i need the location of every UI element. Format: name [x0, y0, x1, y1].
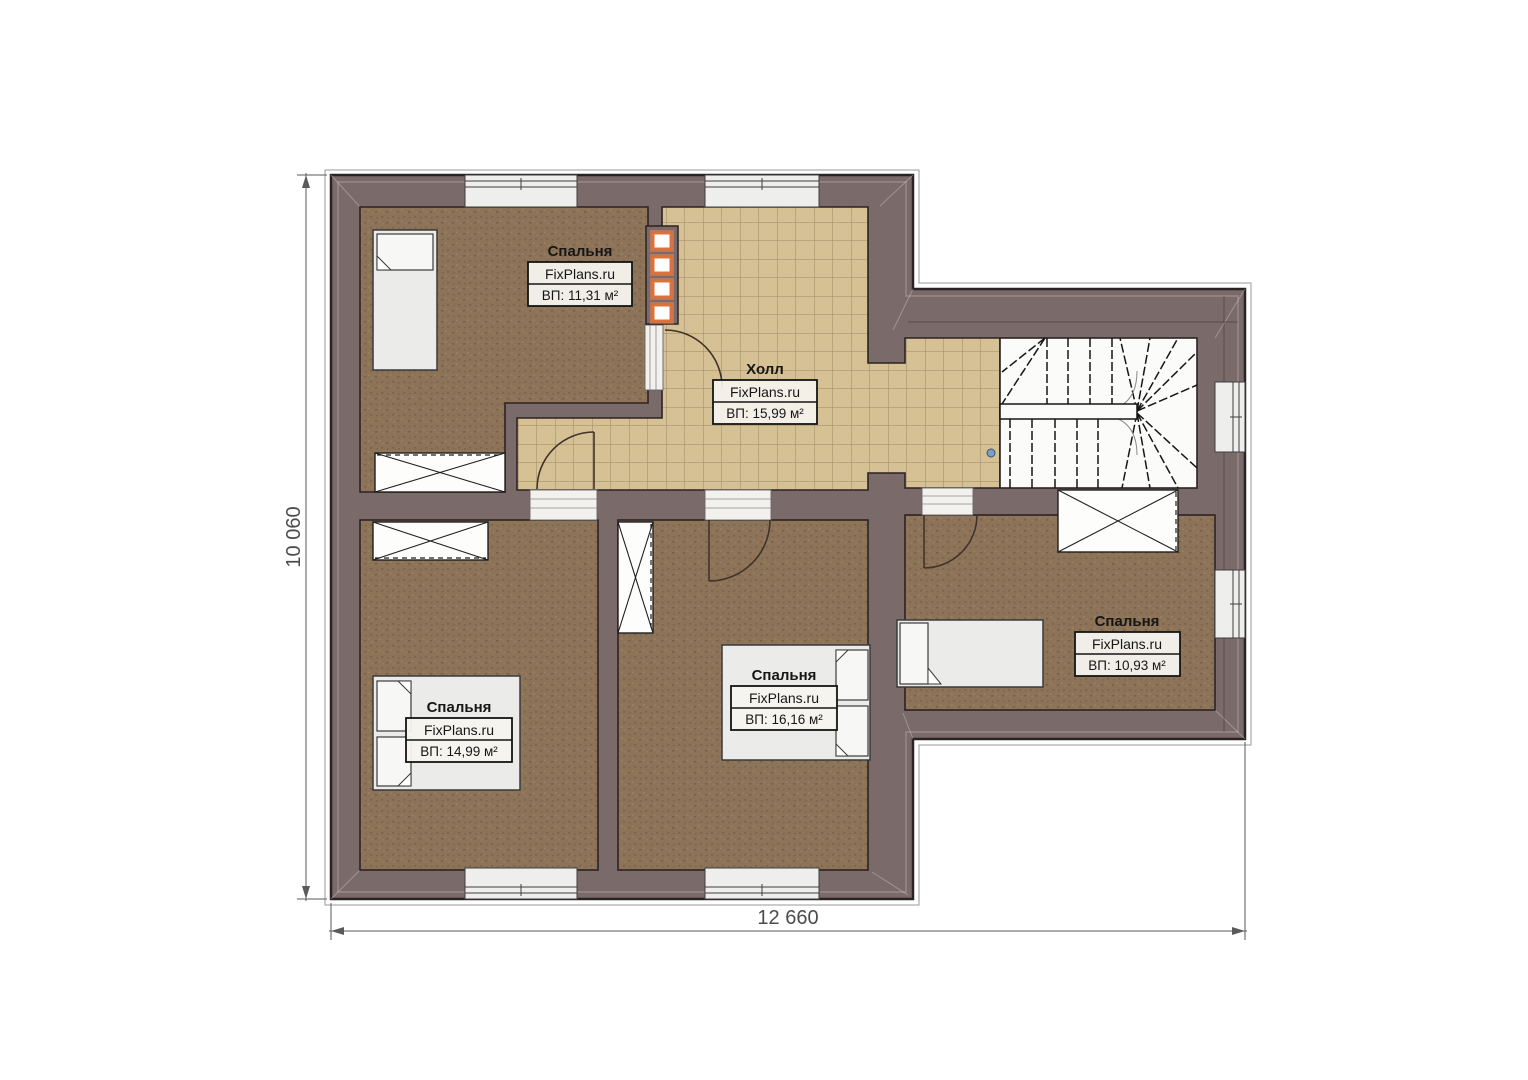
watermark: FixPlans.ru [424, 722, 494, 738]
door-threshold [922, 488, 973, 515]
dimension-width-label: 12 660 [757, 907, 818, 929]
closet [375, 453, 505, 492]
watermark: FixPlans.ru [749, 690, 819, 706]
room-area: ВП: 14,99 м² [420, 744, 498, 759]
door-threshold [645, 325, 663, 390]
closet [618, 522, 653, 633]
door-threshold [705, 490, 771, 520]
vent-shaft [646, 226, 678, 324]
window [705, 868, 819, 899]
room-title: Спальня [427, 699, 492, 716]
stair-landing-rail [1000, 404, 1137, 419]
closet [373, 522, 488, 560]
door-threshold [530, 490, 597, 520]
window [1215, 382, 1245, 452]
watermark: FixPlans.ru [1092, 636, 1162, 652]
watermark: FixPlans.ru [545, 266, 615, 282]
floor-plan-drawing: Спальня FixPlans.ru ВП: 11,31 м² Холл Fi… [0, 0, 1528, 1080]
room-title: Холл [746, 361, 784, 378]
dimension-height: 10 060 [283, 173, 327, 901]
window [465, 868, 577, 899]
window [465, 175, 577, 207]
room-area: ВП: 10,93 м² [1088, 658, 1166, 673]
room-area: ВП: 15,99 м² [726, 406, 804, 421]
floor-plan-page: Спальня FixPlans.ru ВП: 11,31 м² Холл Fi… [0, 0, 1528, 1080]
room-area: ВП: 11,31 м² [542, 288, 619, 303]
room-title: Спальня [548, 243, 613, 260]
dimension-height-label: 10 060 [283, 506, 305, 567]
room-area: ВП: 16,16 м² [745, 712, 823, 727]
room-title: Спальня [1095, 613, 1160, 630]
outlet-symbol [987, 449, 995, 457]
window [705, 175, 819, 207]
bed-single [373, 230, 437, 370]
bed-single [897, 620, 1043, 687]
window [1215, 570, 1245, 638]
closet [1058, 490, 1178, 552]
watermark: FixPlans.ru [730, 384, 800, 400]
room-title: Спальня [752, 667, 817, 684]
